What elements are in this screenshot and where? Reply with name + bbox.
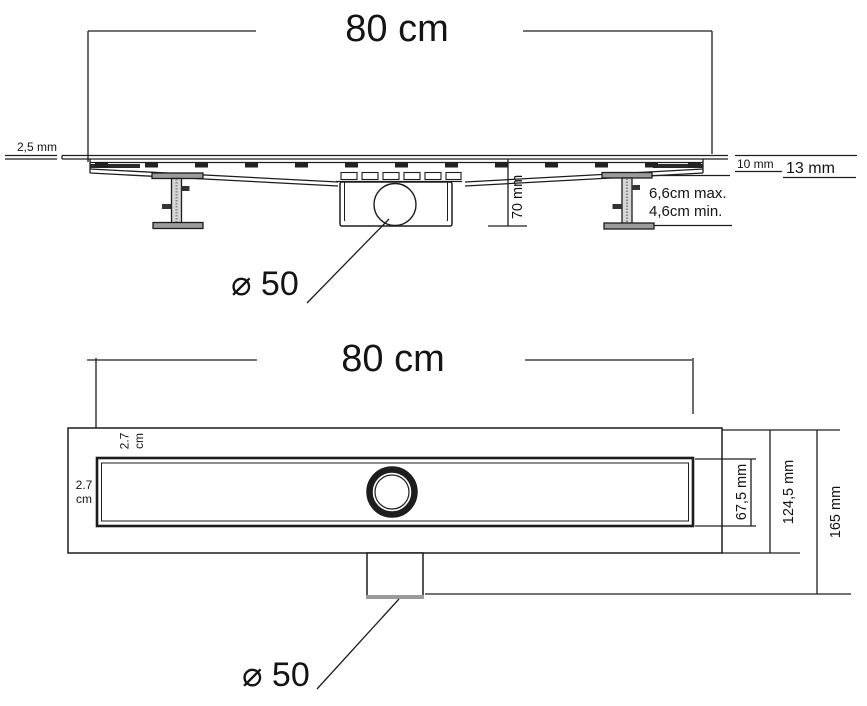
clip-tab: [595, 163, 608, 168]
body-width-label: 124,5 mm: [781, 460, 797, 524]
outlet-spigot-edge: [366, 595, 424, 599]
flange-tooth: [341, 173, 357, 180]
plan-outlet-leader-line: [317, 599, 399, 689]
clip-tab: [95, 163, 108, 168]
leg-height-min-label: 4,6cm min.: [649, 203, 722, 220]
right-leg-bracket: [602, 173, 652, 179]
left-leg-bracket: [152, 173, 203, 179]
left-leg-tab-left: [162, 204, 172, 209]
flange-tooth: [404, 173, 420, 180]
trap-depth-label: 70 mm: [510, 175, 526, 219]
clip-tab: [145, 163, 158, 168]
right-support-leg: [602, 173, 654, 230]
clip-tab: [545, 163, 558, 168]
right-leg-tab-left: [613, 204, 623, 209]
clip-tab: [495, 163, 508, 168]
channel-slope-left: [90, 169, 338, 186]
right-leg-foot: [604, 223, 654, 229]
leg-height-max-label: 6,6cm max.: [649, 185, 727, 202]
channel-clips: [95, 163, 701, 168]
technical-drawing-canvas: 80 cm 2,5 mm 10 mm 13 mm 70 mm 6,6cm max…: [0, 0, 867, 706]
trap-outlet-circle: [374, 184, 416, 226]
flange-tooth: [446, 173, 461, 180]
left-edge-width-unit: cm: [76, 492, 92, 506]
side-outlet-leader-line: [307, 219, 389, 303]
side-outlet-diameter-label: ⌀ 50: [231, 265, 299, 303]
siphon-trap: [336, 173, 462, 227]
left-leg-tab-right: [182, 186, 190, 191]
grate-width-label: 67,5 mm: [734, 464, 750, 520]
side-length-label: 80 cm: [345, 8, 448, 50]
clip-tab: [195, 163, 208, 168]
cover-plate: [62, 156, 728, 160]
flange-tooth: [383, 173, 399, 180]
clip-tab: [645, 163, 658, 168]
clip-tab: [445, 163, 458, 168]
left-edge-width-value: 2.7: [76, 478, 93, 492]
plate-thickness-label: 2,5 mm: [17, 140, 57, 154]
flange-tooth: [425, 173, 441, 180]
plan-outlet-diameter-label: ⌀ 50: [242, 656, 310, 694]
clip-tab: [688, 163, 701, 168]
drain-drawing-svg: 80 cm 2,5 mm 10 mm 13 mm 70 mm 6,6cm max…: [0, 0, 867, 706]
clip-tab: [245, 163, 258, 168]
left-support-leg: [152, 173, 203, 229]
outlet-spigot-rect: [367, 553, 423, 598]
clip-tab: [395, 163, 408, 168]
side-view: [5, 31, 857, 303]
channel-slope-right: [465, 169, 703, 186]
top-edge-width-unit: cm: [132, 433, 146, 449]
plan-view: [68, 358, 851, 689]
right-leg-tab-right: [632, 185, 640, 190]
top-edge-width-value: 2.7: [118, 432, 132, 449]
clip-tab: [295, 163, 308, 168]
tile-thickness-label: 10 mm: [737, 157, 774, 171]
trap-flange-teeth: [341, 173, 461, 180]
total-height-label: 13 mm: [786, 160, 835, 177]
plan-length-label: 80 cm: [341, 338, 444, 380]
flange-tooth: [362, 173, 378, 180]
left-leg-foot: [153, 223, 203, 229]
overall-width-label: 165 mm: [828, 486, 844, 538]
clip-tab: [345, 163, 358, 168]
